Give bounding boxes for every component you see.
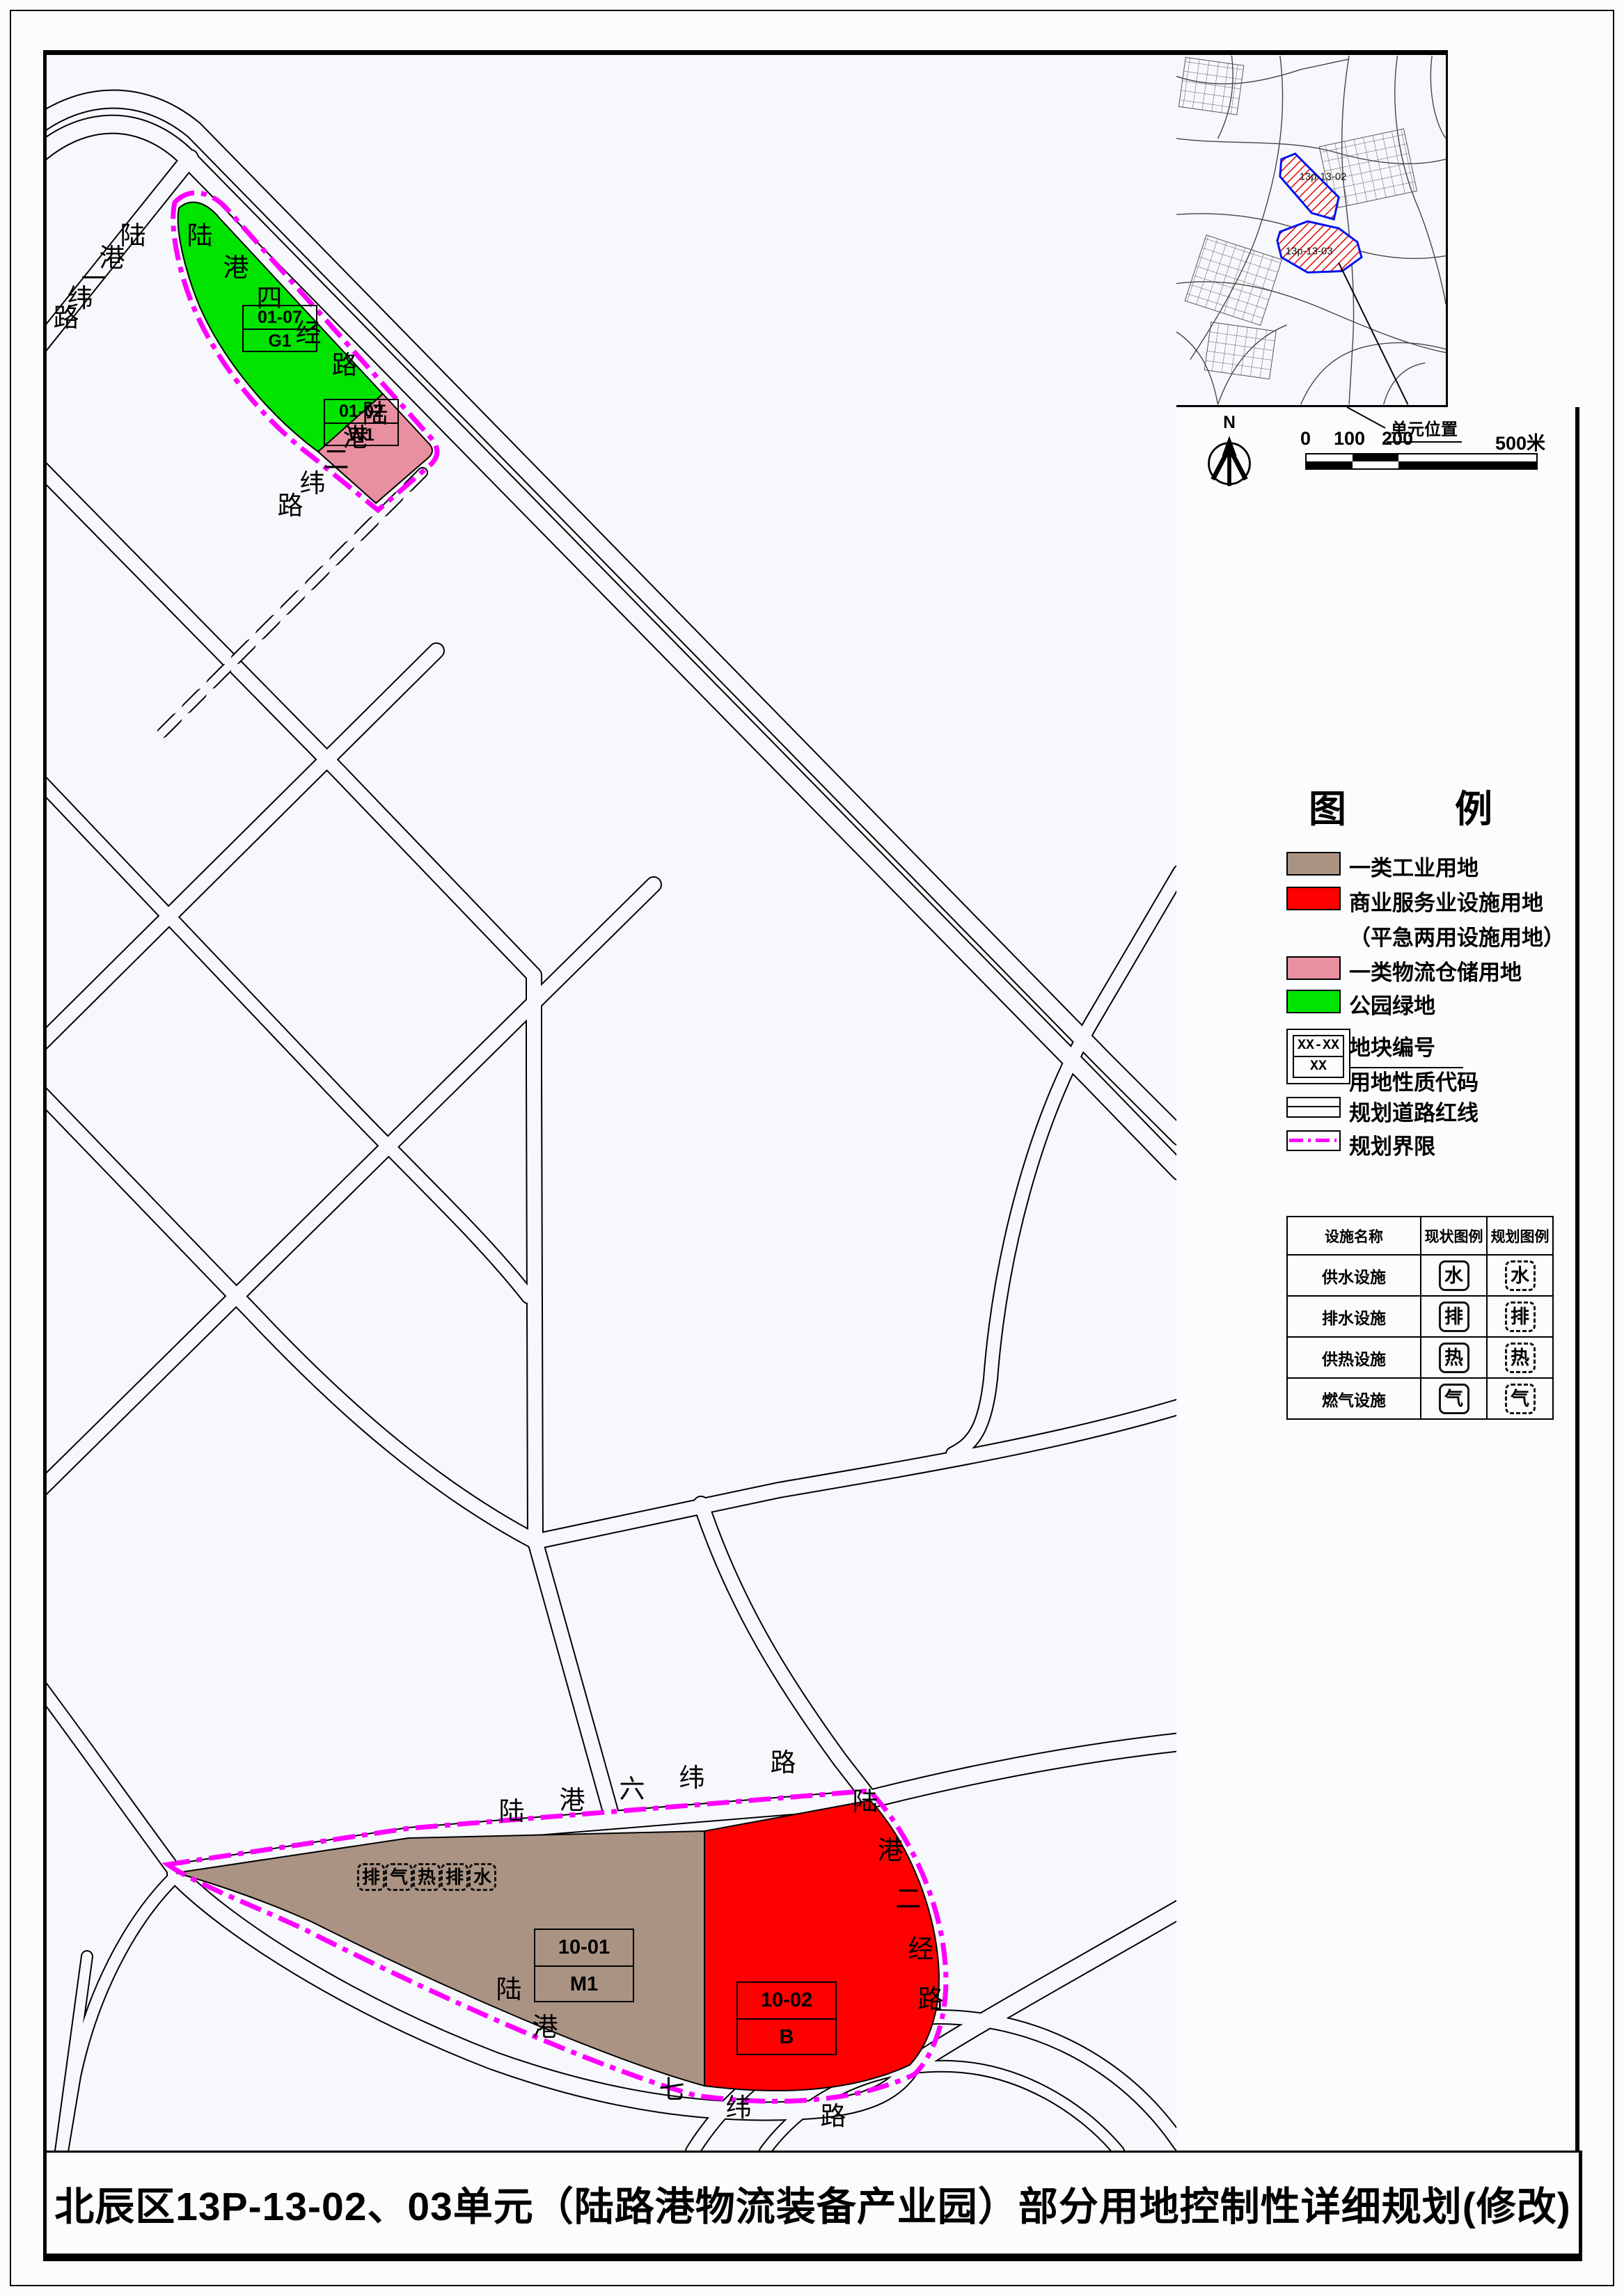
table-row-drainage: 排水设施 排 排 (1287, 1296, 1553, 1337)
road-label-char: 二 (894, 1885, 922, 1913)
parcel-use-code: B (738, 2020, 835, 2055)
road-label-char: 陆 (851, 1788, 879, 1816)
table-row-heat: 供热设施 热 热 (1287, 1337, 1553, 1378)
scale-tick-100: 100 (1334, 428, 1365, 450)
parcel-label-01-02: 01-02 W1 (324, 399, 399, 446)
north-arrow: N (1203, 413, 1256, 491)
north-label: N (1223, 413, 1236, 432)
road-redline-symbol (1286, 1097, 1341, 1118)
road-label-char: 路 (769, 1749, 797, 1777)
page-title: 北辰区13P-13-02、03单元（陆路港物流装备产业园）部分用地控制性详细规划… (54, 2175, 1571, 2232)
facility-name: 燃气设施 (1287, 1378, 1421, 1419)
road-label-char: 二 (322, 446, 350, 474)
park-swatch (1286, 990, 1341, 1013)
road-label-char: 路 (917, 1986, 945, 2013)
existing-drainage-icon: 排 (1439, 1301, 1469, 1332)
unit-label-03: 13p-13-03 (1286, 246, 1333, 258)
road-label-char: 路 (52, 304, 80, 332)
symbol-code-top: XX-XX (1294, 1036, 1343, 1057)
road-label-char: 七 (658, 2076, 686, 2104)
planned-gas-icon: 气 (1505, 1384, 1536, 1414)
locator-grid-districts (1178, 57, 1417, 379)
planning-map-page: { "title": "北辰区13P-13-02、03单元（陆路港物流装备产业园… (0, 0, 1624, 2296)
parcel-code: 10-02 (738, 1983, 835, 2020)
road-label-char: 纬 (725, 2094, 752, 2122)
road-label-char: 港 (531, 2013, 559, 2041)
existing-water-icon: 水 (1439, 1260, 1469, 1291)
road-label-char: 路 (331, 351, 358, 379)
parcel-use-code: W1 (325, 424, 397, 446)
planned-heat-icon: 热 (1505, 1343, 1536, 1373)
col-header-existing: 现状图例 (1421, 1217, 1487, 1255)
road-label-char: 陆 (498, 1798, 526, 1826)
facility-icon-drainage-2: 排 (441, 1863, 468, 1891)
parcel-code: 01-07 (244, 306, 316, 330)
logistics-swatch (1286, 956, 1341, 980)
parcel-use-code: M1 (535, 1967, 633, 2002)
facility-icon-drainage: 排 (357, 1863, 385, 1891)
scale-tick-500: 500米 (1495, 428, 1545, 455)
scale-tick-200: 200 (1382, 428, 1413, 450)
legend-label-parcel-number: 地块编号 (1349, 1030, 1463, 1068)
road-label-char: 路 (819, 2103, 847, 2130)
legend-label-use-code: 用地性质代码 (1349, 1065, 1479, 1096)
col-header-facility: 设施名称 (1287, 1217, 1421, 1255)
facility-legend-table: 设施名称 现状图例 规划图例 供水设施 水 水 排水设施 排 排 供热设施 热 … (1286, 1216, 1554, 1420)
road-label-char: 六 (618, 1775, 646, 1803)
legend-title: 图例 (1309, 778, 1492, 833)
scale-panel: 单元位置 N 0 100 200 500米 (1176, 407, 1579, 498)
parcel-code-symbol: XX-XX XX (1286, 1029, 1350, 1084)
legend-title-right: 例 (1455, 789, 1492, 830)
commercial-swatch (1286, 887, 1341, 910)
locator-map: 13p-13-02 13p-13-03 (1176, 55, 1448, 407)
planned-water-icon: 水 (1505, 1260, 1536, 1291)
road-network-canvas (47, 55, 1176, 2151)
locator-canvas: 13p-13-02 13p-13-03 (1176, 55, 1446, 405)
main-map: 陆港一纬路 陆港四经路 陆港二纬路 陆港六纬路 陆港七纬路 陆港二经路 01-0… (43, 55, 1178, 2153)
parcel-code: 10-01 (535, 1930, 633, 1967)
road-label-char: 路 (276, 492, 304, 520)
legend-label: 商业服务业设施用地 (1349, 885, 1543, 917)
road-label-char: 港 (222, 254, 250, 282)
unit-leader-line (1339, 263, 1408, 404)
parcel-label-10-01: 10-01 M1 (534, 1929, 634, 2002)
road-label-char: 纬 (678, 1764, 706, 1792)
road-label-char: 陆 (495, 1976, 523, 2004)
road-label-char: 经 (907, 1935, 935, 1963)
legend-title-left: 图 (1309, 789, 1346, 830)
existing-gas-icon: 气 (1439, 1384, 1469, 1414)
table-row-water: 供水设施 水 水 (1287, 1255, 1553, 1296)
facility-name: 排水设施 (1287, 1296, 1421, 1337)
facility-icon-water: 水 (468, 1863, 496, 1891)
parcel-code: 01-02 (325, 400, 397, 424)
scale-bar (1305, 453, 1538, 470)
legend-label: 规划界限 (1349, 1129, 1435, 1160)
parcel-code-symbol-inner: XX-XX XX (1293, 1035, 1344, 1078)
planning-boundary-symbol (1286, 1130, 1341, 1151)
table-row-gas: 燃气设施 气 气 (1287, 1378, 1553, 1419)
facility-name: 供热设施 (1287, 1337, 1421, 1378)
existing-heat-icon: 热 (1439, 1343, 1469, 1373)
road-label-char: 港 (876, 1837, 904, 1864)
leader-line-canvas (1343, 407, 1392, 431)
road-label-char: 港 (558, 1787, 586, 1814)
legend-label: 一类物流仓储用地 (1349, 955, 1522, 986)
title-band: 北辰区13P-13-02、03单元（陆路港物流装备产业园）部分用地控制性详细规划… (43, 2151, 1582, 2261)
facility-icon-heat: 热 (413, 1863, 441, 1891)
unit-label-02: 13p-13-02 (1300, 172, 1347, 183)
planned-drainage-icon: 排 (1505, 1301, 1536, 1332)
legend-label: 公园绿地 (1349, 988, 1435, 1020)
legend-label: （平急两用设施用地） (1349, 920, 1565, 951)
facility-icon-gas: 气 (385, 1863, 413, 1891)
facility-name: 供水设施 (1287, 1255, 1421, 1296)
frame-top-bar (43, 50, 1448, 55)
parcel-use-code: G1 (244, 330, 316, 352)
road-label-char: 陆 (186, 222, 214, 250)
parcel-label-10-02: 10-02 B (736, 1981, 837, 2055)
legend-sidebar: 图例 一类工业用地 商业服务业设施用地 （平急两用设施用地） 一类物流仓储用地 … (1176, 496, 1579, 2151)
legend-label: 规划道路红线 (1349, 1095, 1479, 1127)
industrial-swatch (1286, 852, 1341, 876)
scale-tick-0: 0 (1300, 428, 1311, 450)
parcel-label-01-07: 01-07 G1 (242, 305, 317, 352)
legend-label: 一类工业用地 (1349, 850, 1479, 882)
symbol-code-bottom: XX (1294, 1057, 1343, 1077)
col-header-planned: 规划图例 (1487, 1217, 1553, 1255)
